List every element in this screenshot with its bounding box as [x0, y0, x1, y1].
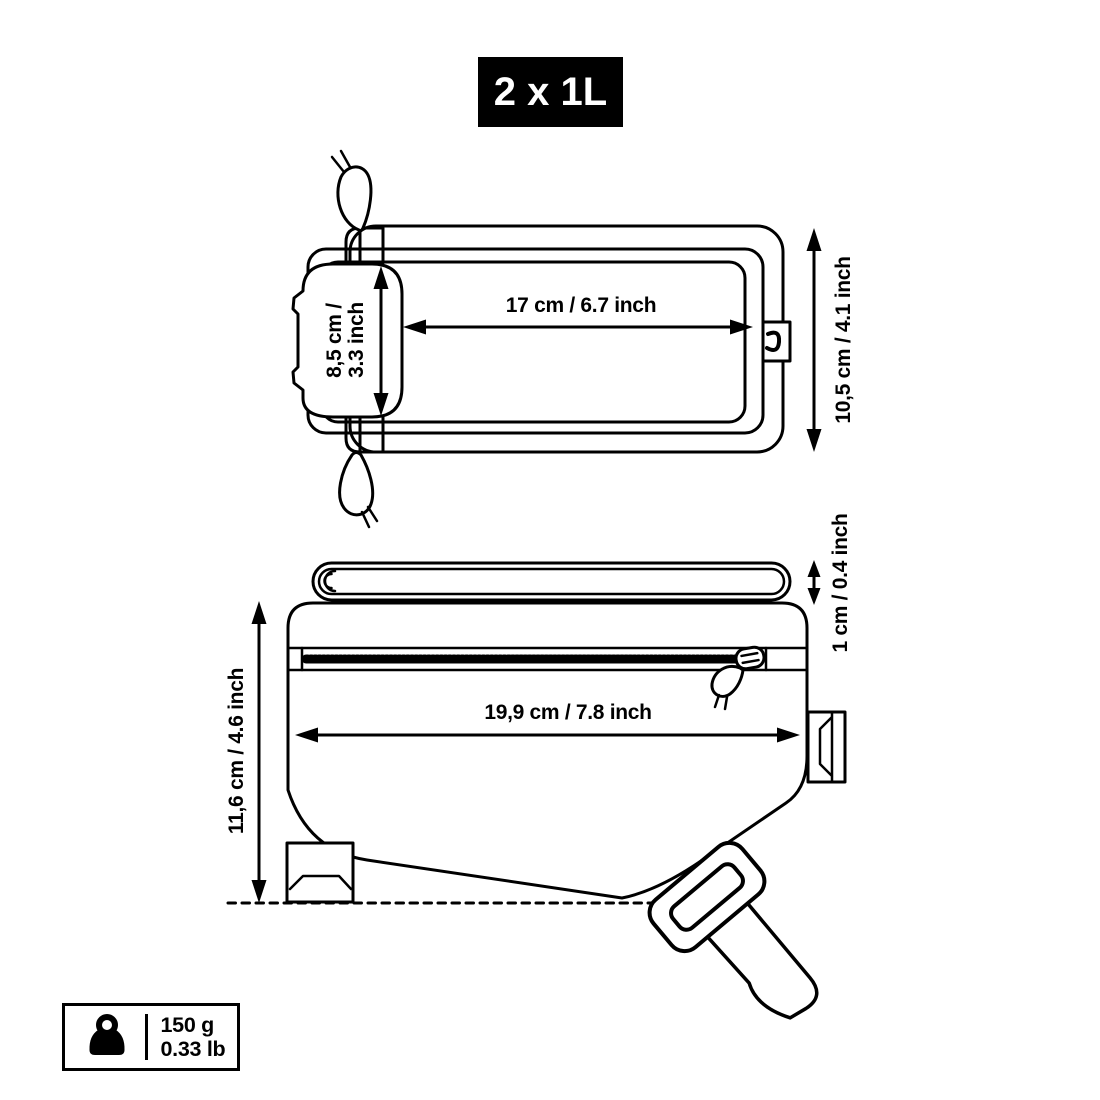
weight-grams: 150 g: [161, 1013, 226, 1037]
window-height-label: 8,5 cm / 3.3 inch: [324, 302, 369, 378]
flap-thickness-arrow: [808, 560, 821, 605]
top-width-label: 17 cm / 6.7 inch: [506, 295, 656, 317]
volume-badge-label: 2 x 1L: [494, 70, 607, 115]
left-foot: [287, 843, 353, 902]
diagram-linework: [0, 0, 1100, 1100]
weight-kettlebell-icon: [85, 1014, 129, 1060]
weight-values: 150 g 0.33 lb: [161, 1013, 226, 1061]
side-view-drawing: [228, 560, 847, 1049]
product-dimension-diagram: 2 x 1L 17 cm / 6.7 inch 8,5 cm / 3.3 inc…: [0, 0, 1100, 1100]
weight-badge-divider: [145, 1014, 148, 1060]
weight-badge: 150 g 0.33 lb: [62, 1003, 240, 1071]
weight-pounds: 0.33 lb: [161, 1037, 226, 1061]
side-length-label: 19,9 cm / 7.8 inch: [484, 702, 651, 724]
bottom-cord-toggle: [340, 453, 373, 515]
volume-badge: 2 x 1L: [478, 57, 623, 127]
top-height-arrow: [807, 228, 822, 452]
top-height-label: 10,5 cm / 4.1 inch: [833, 256, 855, 423]
top-view-drawing: [293, 151, 822, 527]
top-view-right-tab: [763, 322, 790, 361]
side-height-label: 11,6 cm / 4.6 inch: [226, 668, 248, 834]
top-view-outer-outline: [350, 226, 783, 452]
flap-thickness-label: 1 cm / 0.4 inch: [830, 513, 852, 652]
window-height-label-line2: 3.3 inch: [346, 302, 368, 378]
window-height-label-line1: 8,5 cm /: [324, 302, 346, 378]
top-cord-toggle: [338, 167, 371, 231]
side-height-arrow: [252, 601, 267, 903]
